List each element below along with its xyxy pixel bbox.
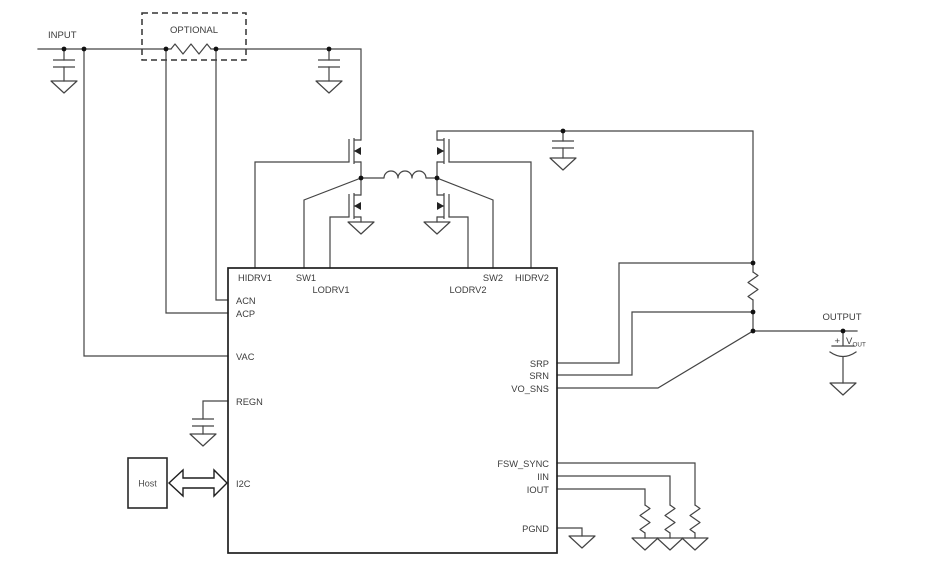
junction-dot	[62, 47, 67, 52]
junction-dot	[561, 129, 566, 134]
bulk-capacitor-icon	[318, 60, 340, 67]
ground-icon	[550, 158, 576, 170]
pin-label-srp: SRP	[530, 359, 549, 369]
mosfet-q1-icon	[349, 138, 361, 164]
ground-icon	[348, 222, 374, 234]
inductor-icon	[361, 171, 437, 178]
sense-resistor-icon	[748, 272, 758, 300]
mosfet-q4-icon	[437, 138, 449, 164]
i2c-arrow-icon	[169, 470, 227, 496]
schematic-canvas: INPUT OPTIONAL	[0, 0, 926, 582]
setting-resistors	[557, 463, 708, 550]
ground-icon	[569, 536, 595, 548]
vout-subscript-label: OUT	[853, 342, 866, 349]
junction-dot	[359, 176, 364, 181]
junction-dot	[435, 176, 440, 181]
pin-label-iin: IIN	[537, 472, 549, 482]
regn-wire	[203, 401, 228, 434]
sw2-wire	[437, 162, 493, 268]
iout-wire	[557, 489, 645, 538]
junction-dot	[841, 329, 846, 334]
fsw-resistor-icon	[690, 505, 700, 533]
ground-icon	[657, 538, 683, 550]
ground-icon	[190, 434, 216, 446]
pin-label-lodrv2: LODRV2	[449, 285, 486, 295]
vo-sns-wire	[557, 331, 753, 388]
ground-icon	[682, 538, 708, 550]
pin-label-srn: SRN	[529, 371, 549, 381]
host-section: Host	[128, 458, 227, 508]
vac-wire	[84, 49, 228, 356]
regn-capacitor-icon	[192, 419, 214, 426]
pin-label-hidrv1: HIDRV1	[238, 273, 272, 283]
host-label: Host	[138, 479, 157, 489]
junction-dot	[82, 47, 87, 52]
acp-wire	[166, 49, 228, 313]
optional-dashed-box	[142, 13, 246, 60]
hidrv1-gate-wire	[255, 162, 349, 268]
lodrv2-gate-wire	[449, 217, 468, 268]
output-section: OUTPUT + V OUT	[557, 263, 866, 395]
charger-application-schematic: INPUT OPTIONAL	[0, 0, 926, 582]
pin-label-vac: VAC	[236, 352, 255, 362]
output-terminal-label: OUTPUT	[822, 312, 861, 323]
input-sense-wires	[84, 49, 228, 356]
mosfet-q2-icon	[349, 193, 361, 219]
input-section: INPUT OPTIONAL	[38, 13, 361, 140]
sw1-wire	[304, 162, 361, 268]
pin-label-lodrv1: LODRV1	[312, 285, 349, 295]
input-terminal-label: INPUT	[48, 30, 77, 41]
hidrv2-gate-wire	[449, 162, 531, 268]
optional-resistor-icon	[171, 44, 211, 54]
ground-icon	[51, 81, 77, 93]
junction-dot	[327, 47, 332, 52]
output-capacitor-plus-label: +	[834, 336, 840, 347]
junction-dot	[751, 329, 756, 334]
optional-label: OPTIONAL	[170, 25, 218, 36]
charger-ic-outline	[228, 268, 557, 553]
ground-icon	[632, 538, 658, 550]
pin-label-sw1: SW1	[296, 273, 316, 283]
srn-wire	[557, 312, 753, 375]
iin-wire	[557, 476, 670, 538]
pin-label-sw2: SW2	[483, 273, 503, 283]
pin-label-fsw-sync: FSW_SYNC	[497, 459, 549, 469]
input-rail-wire	[38, 49, 361, 140]
output-rail-wire	[437, 131, 753, 331]
pin-label-i2c: I2C	[236, 479, 251, 489]
pin-label-regn: REGN	[236, 397, 263, 407]
pin-label-hidrv2: HIDRV2	[515, 273, 549, 283]
junction-dot	[751, 310, 756, 315]
ic-pin-labels: HIDRV1 SW1 LODRV1 LODRV2 SW2 HIDRV2 ACN …	[236, 273, 549, 534]
ground-icon	[316, 81, 342, 93]
bypass-capacitor-icon	[552, 141, 574, 148]
regn-section	[190, 401, 228, 446]
ground-icon	[830, 383, 856, 395]
lodrv1-gate-wire	[330, 217, 349, 268]
ground-icon	[424, 222, 450, 234]
pin-label-acn: ACN	[236, 296, 256, 306]
pin-label-pgnd: PGND	[522, 524, 549, 534]
iout-resistor-icon	[640, 505, 650, 533]
pgnd-wire	[557, 528, 582, 536]
pin-label-iout: IOUT	[527, 485, 550, 495]
acn-wire	[216, 49, 228, 300]
iin-resistor-icon	[665, 505, 675, 533]
power-stage	[255, 131, 758, 331]
fsw-sync-wire	[557, 463, 695, 538]
junction-dot	[751, 261, 756, 266]
input-capacitor-icon	[53, 60, 75, 67]
pin-label-vo-sns: VO_SNS	[511, 384, 549, 394]
junction-dot	[214, 47, 219, 52]
junction-dot	[164, 47, 169, 52]
mosfet-q3-icon	[437, 193, 449, 219]
pin-label-acp: ACP	[236, 309, 255, 319]
